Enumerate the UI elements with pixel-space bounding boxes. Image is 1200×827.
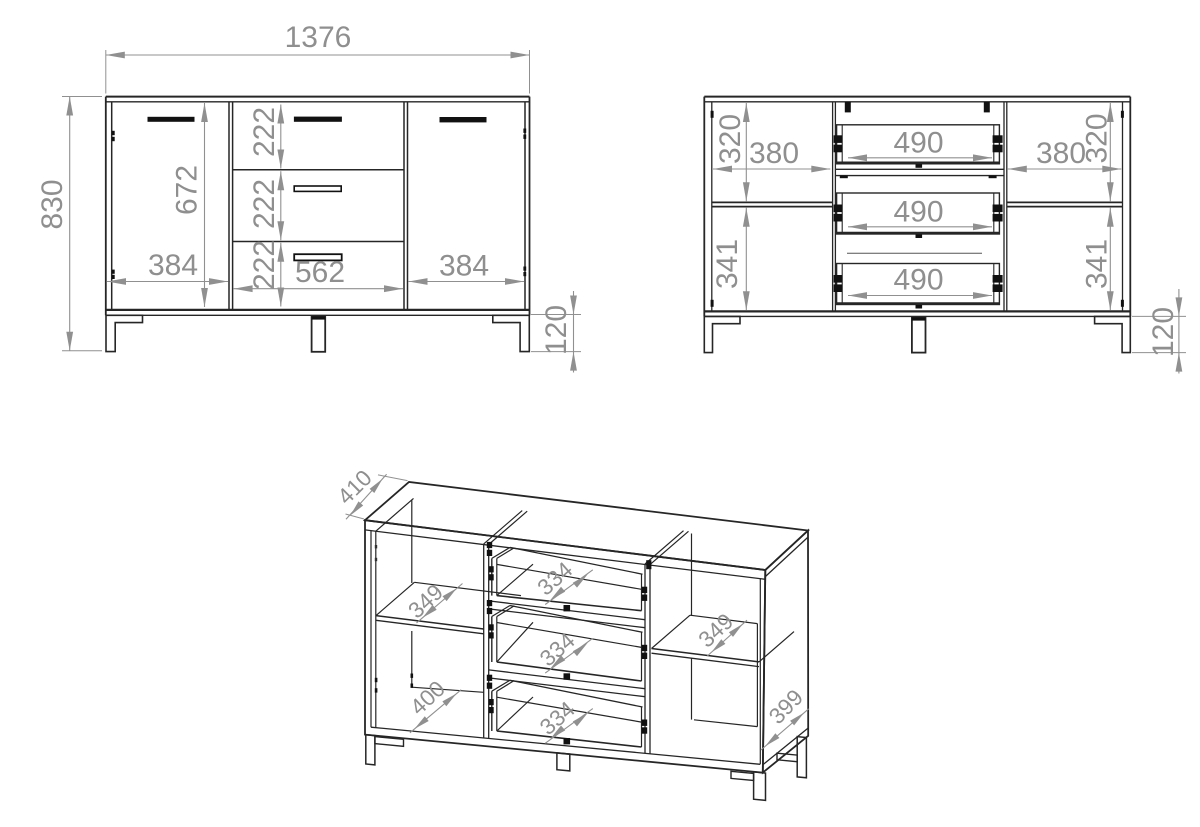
svg-text:222: 222: [248, 179, 281, 229]
svg-text:120: 120: [540, 305, 573, 355]
svg-text:120: 120: [1147, 307, 1180, 357]
svg-text:384: 384: [439, 250, 489, 283]
svg-text:562: 562: [295, 256, 345, 289]
svg-text:222: 222: [248, 240, 281, 290]
svg-text:830: 830: [36, 179, 69, 229]
svg-text:222: 222: [248, 107, 281, 157]
svg-text:380: 380: [749, 137, 799, 170]
svg-text:490: 490: [893, 127, 943, 160]
svg-text:1376: 1376: [285, 21, 352, 54]
svg-text:672: 672: [171, 165, 204, 215]
svg-text:320: 320: [714, 114, 747, 164]
svg-text:341: 341: [711, 239, 744, 289]
svg-text:380: 380: [1036, 137, 1086, 170]
svg-text:384: 384: [148, 249, 198, 282]
svg-text:490: 490: [893, 196, 943, 229]
svg-text:490: 490: [893, 264, 943, 297]
svg-text:341: 341: [1081, 239, 1114, 289]
